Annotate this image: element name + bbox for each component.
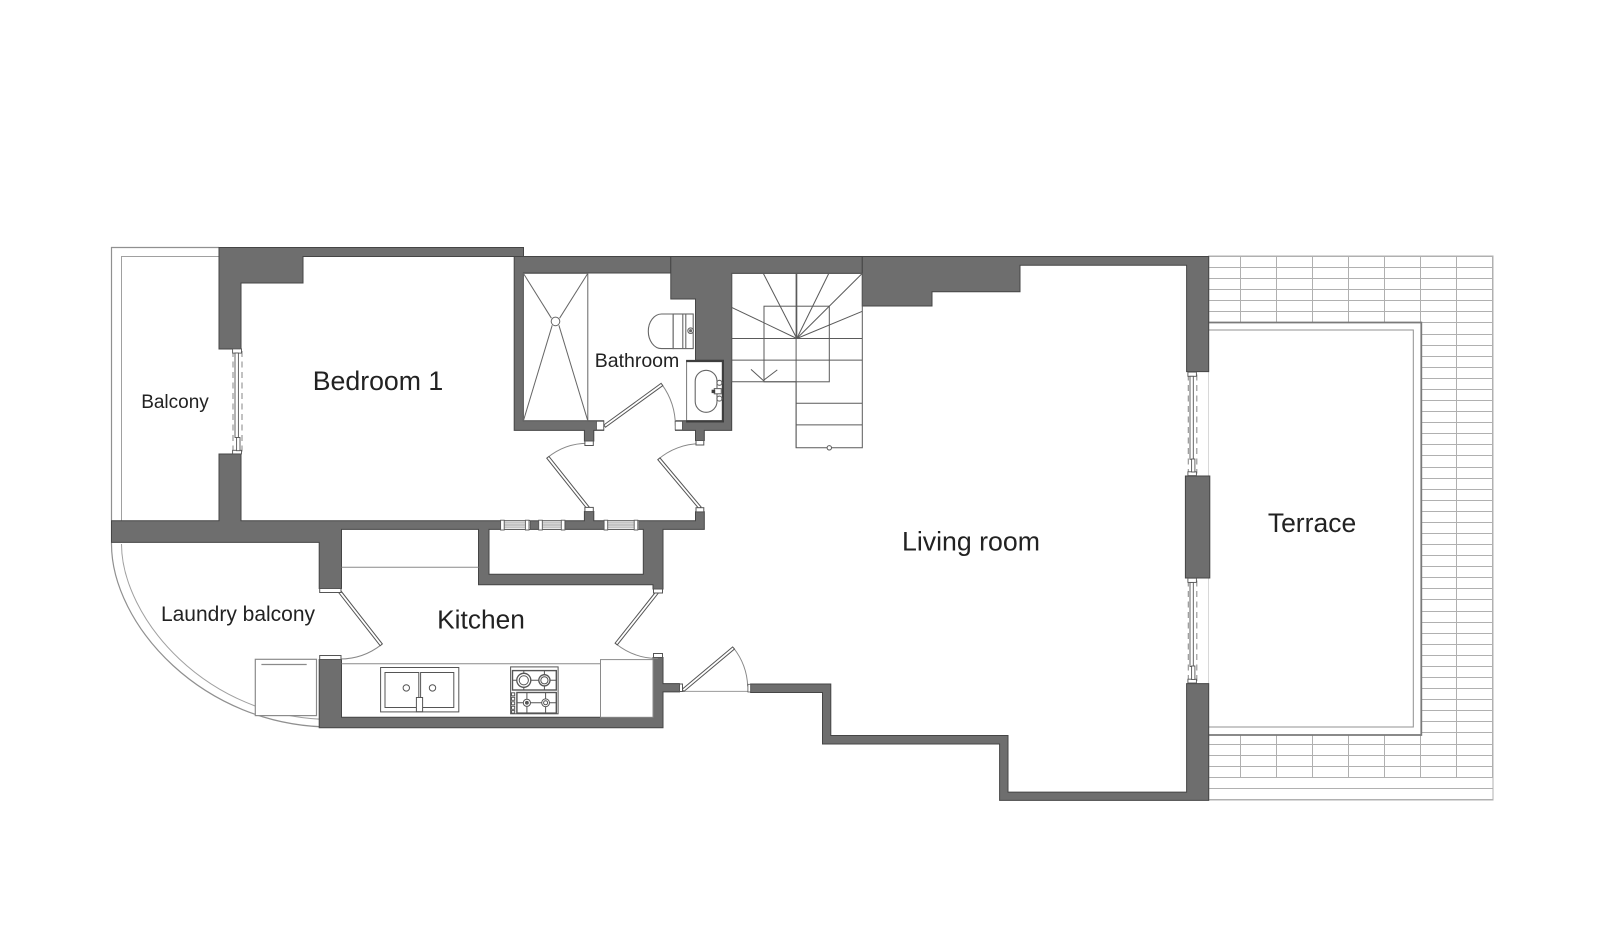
svg-text:Kitchen: Kitchen <box>437 605 525 635</box>
svg-text:Living room: Living room <box>902 527 1040 557</box>
svg-text:Bathroom: Bathroom <box>595 350 680 372</box>
svg-text:Laundry balcony: Laundry balcony <box>161 603 316 626</box>
svg-text:Terrace: Terrace <box>1268 508 1356 538</box>
svg-text:Balcony: Balcony <box>141 392 209 413</box>
svg-text:Bedroom 1: Bedroom 1 <box>313 366 444 396</box>
